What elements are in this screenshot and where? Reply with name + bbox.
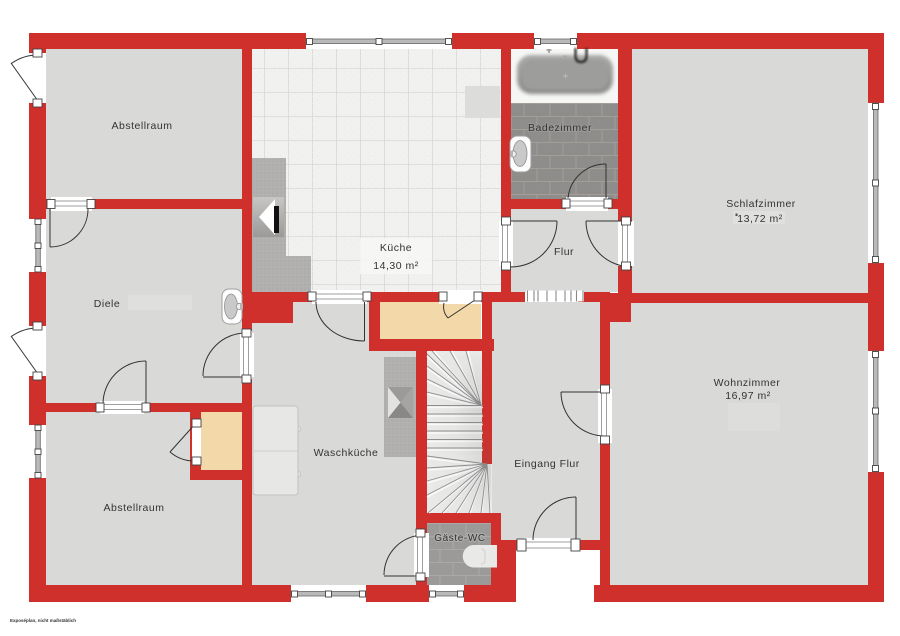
svg-text:Eingang Flur: Eingang Flur	[514, 458, 580, 470]
svg-text:Abstellraum: Abstellraum	[112, 120, 173, 132]
svg-text:Exposéplan, nicht maßstäblich: Exposéplan, nicht maßstäblich	[10, 618, 76, 623]
svg-text:Küche: Küche	[380, 242, 412, 254]
svg-text:Flur: Flur	[554, 246, 574, 258]
svg-text:Badezimmer: Badezimmer	[528, 122, 592, 134]
svg-text:13,72 m²: 13,72 m²	[737, 213, 782, 225]
svg-text:Waschküche: Waschküche	[314, 447, 379, 459]
svg-text:Abstellraum: Abstellraum	[104, 502, 165, 514]
svg-text:Diele: Diele	[94, 298, 120, 310]
svg-text:14,30 m²: 14,30 m²	[373, 260, 418, 272]
svg-text:16,97 m²: 16,97 m²	[725, 390, 770, 402]
svg-text:Schlafzimmer: Schlafzimmer	[726, 198, 796, 210]
svg-text:Gäste-WC: Gäste-WC	[434, 533, 485, 544]
svg-text:Wohnzimmer: Wohnzimmer	[714, 377, 781, 389]
